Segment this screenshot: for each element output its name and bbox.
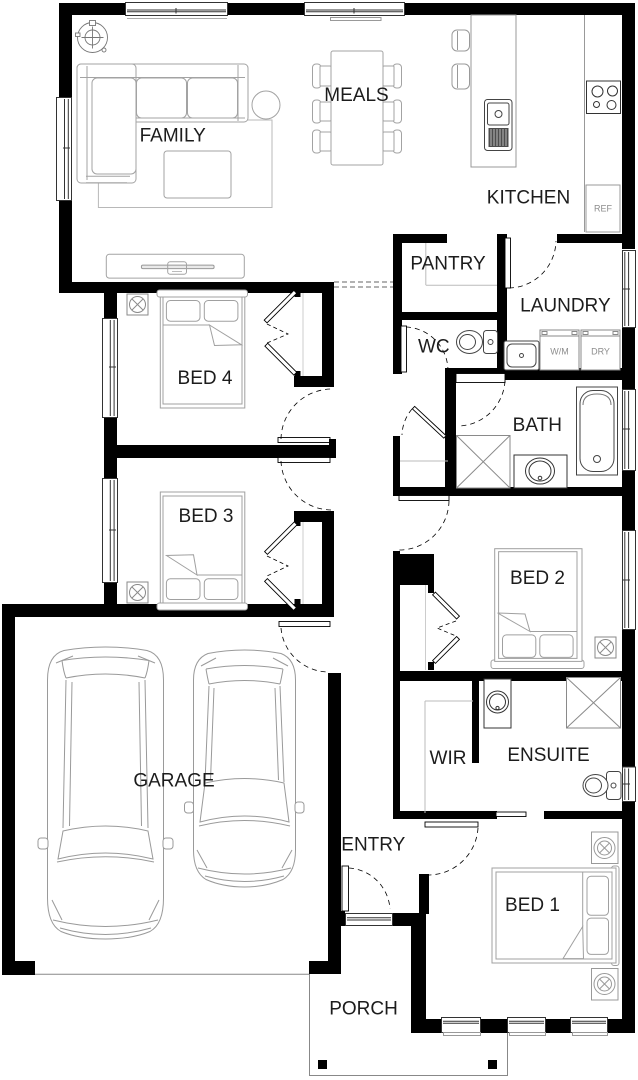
svg-text:DRY: DRY [591,347,610,357]
svg-text:ENTRY: ENTRY [341,835,405,856]
svg-text:KITCHEN: KITCHEN [487,187,570,208]
svg-text:W/M: W/M [550,347,569,357]
svg-text:GARAGE: GARAGE [133,770,214,791]
svg-text:BED 2: BED 2 [510,568,565,589]
svg-text:BED 1: BED 1 [505,895,560,916]
svg-text:PANTRY: PANTRY [410,253,486,274]
svg-text:LAUNDRY: LAUNDRY [520,296,611,317]
svg-text:BATH: BATH [513,415,562,436]
svg-text:ENSUITE: ENSUITE [507,745,589,766]
svg-text:PORCH: PORCH [329,999,398,1020]
svg-text:BED 4: BED 4 [178,368,233,389]
svg-text:MEALS: MEALS [324,85,388,106]
svg-text:WC: WC [418,337,450,358]
svg-text:REF: REF [594,204,613,214]
svg-text:WIR: WIR [430,748,467,769]
svg-text:BED 3: BED 3 [179,506,234,527]
svg-text:FAMILY: FAMILY [140,125,206,146]
